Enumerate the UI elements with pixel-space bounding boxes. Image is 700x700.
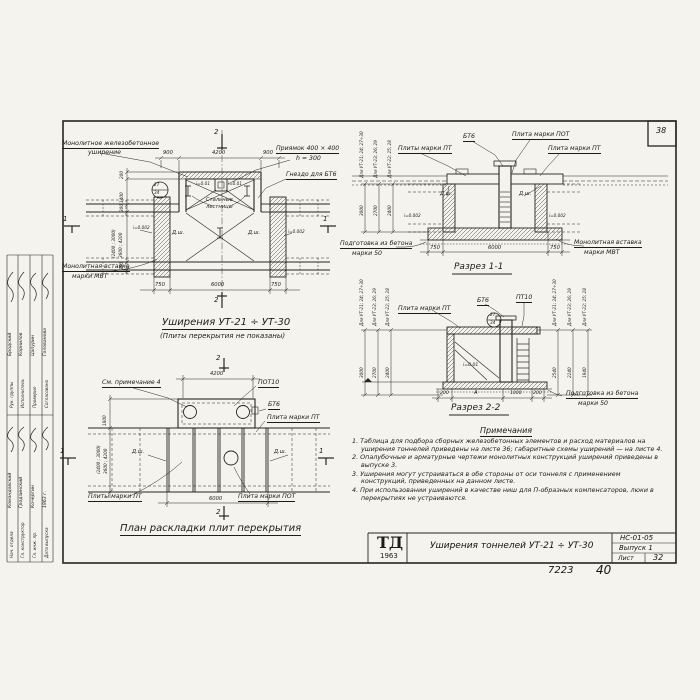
s2-slope: i=0.01 [463,364,478,369]
label-pit: Приямок 400 × 400 [276,146,339,154]
titleblock-sheet-number: 32 [653,554,663,562]
pb-dim-1800: 1800 [103,415,107,426]
stamp-role-5: Нач. отдела [10,531,14,558]
s1-dim-value-2: 2700 [374,205,378,216]
drawing-sheet: 38 Монолитное железобетонное уширение Пр… [0,0,700,700]
s2-dimr-value-2: 2240 [568,367,572,378]
slope-pit-left: i=0.01 [196,182,210,186]
titleblock-code: НС-01-05 [620,535,653,542]
detail-callout-num: 27 [154,183,159,187]
stamp-name-2: Корнилов [20,333,25,356]
s2-detail-sheet: 34 [490,321,495,325]
slope-left: i=0.002 [133,226,150,230]
notes-title: Примечания [480,427,532,437]
s2-dimr-label-1: Для УТ-21; 24; 27÷30 [553,279,557,326]
slope-right: i=0.002 [288,230,305,234]
stamp-role-6: Гл. конструктор [21,522,25,558]
joint-dsh-right: Д.ш. [248,231,260,236]
dim-750-left: 750 [155,283,165,288]
detail-callout-sheet: 34 [154,191,159,195]
s1-label-prep-2: марки 50 [352,251,382,257]
s2-dimr-value-1: 2540 [553,367,557,378]
label-socket-bt6: Гнездо для БТ6 [286,172,337,180]
s2-diml-value-2: 2700 [373,367,377,378]
stamp-role-7: Гл. инж. пр. [33,532,37,558]
section-mark-2-top: 2 [214,129,218,136]
s2-label-bt6: БТ6 [477,298,489,306]
s1-label-insert-2: марки МВТ [584,250,619,256]
s2-label-prep: Подготовка из бетона [566,391,638,399]
s2-diml-label-3: Для УТ-22; 25; 28 [386,288,390,326]
pb-label-pts: Плиты марки ПТ [88,494,142,502]
s1-label-prep: Подготовка из бетона [340,241,412,249]
s1-label-pt-right: Плита марки ПТ [548,146,601,154]
label-steel-ladders: Стальные [206,198,233,203]
pb-label-pt: Плита марки ПТ [267,415,320,423]
dim-300-top: 300 [120,204,124,212]
titleblock-issue: Выпуск 1 [619,545,653,552]
dim-4200: 4200 [212,151,225,156]
logo-year: 1963 [380,553,398,560]
s1-label-bt6: БТ6 [463,134,475,142]
pb-label-note: См. примечание 4 [102,380,161,388]
s1-dim-value-1: 3000 [360,205,364,216]
s1-label-insert: Монолитная вставка [574,240,642,248]
dim-900-right: 900 [263,151,273,156]
s2-diml-label-1: Для УТ-21; 24; 27÷30 [360,279,364,326]
s1-slope-left: i=0.002 [404,214,421,218]
pb-dsh-left: Д.ш. [132,450,144,455]
dim-750-right: 750 [271,283,281,288]
stamp-name-6: Гродзинский [20,477,25,508]
s2-dimr-value-3: 1940 [583,367,587,378]
s2-diml-value-1: 3000 [360,367,364,378]
s2-label-pt10: ПТ10 [516,295,532,303]
pb-dim-width-a: (2400 ; 3000) [97,445,101,474]
s1-dim-750-left: 750 [430,246,440,251]
stamp-name-1: Бродский [9,333,14,356]
stamp-role-8: Дата выпуска [45,527,49,558]
pb-dim-6000: 6000 [209,497,222,502]
pb-mark-1-right: 1 [319,448,323,455]
s2-dim-a: А [474,391,478,396]
label-monolithic-insert-2: марки МВТ [72,274,107,280]
dim-width-a: (2400 ; 3000) [112,229,116,258]
s2-dimr-label-2: Для УТ-23; 26; 29 [568,288,572,326]
slope-pit-right: i=0.01 [228,182,242,186]
pb-mark-2-bottom: 2 [216,509,220,516]
dim-300-bottom: 300 [120,262,124,270]
s2-dim-200-right: 200 [533,392,542,397]
s2-label-pt: Плита марки ПТ [398,306,451,314]
titleblock-title: Уширения тоннелей УТ-21 ÷ УТ-30 [430,542,594,551]
pb-dsh-right: Д.ш. [274,450,286,455]
s2-label-prep-2: марки 50 [578,401,608,407]
stamp-role-4: Согласовано [45,380,49,408]
section-mark-2-bottom: 2 [214,297,218,304]
pb-mark-1-left: 1 [60,448,64,455]
stamp-name-8: 1963 г. [44,491,49,508]
stamp-name-7: Кочергин [32,485,37,508]
s1-slope-right: i=0.002 [549,214,566,218]
s2-detail-num: 27 [490,313,495,317]
s1-dsh-right: Д.ш. [519,192,531,197]
s1-dsh-left: Д.ш. [440,192,452,197]
note-item-4: 4. При использовании уширений в качестве… [352,487,668,502]
pb-label-pot10: ПОТ10 [258,380,279,388]
dim-200: 200 [120,171,124,179]
dim-900-left: 900 [163,151,173,156]
joint-dsh-left: Д.ш. [172,231,184,236]
stamp-name-3: Цапурин [32,335,37,356]
s1-dim-value-3: 2400 [388,205,392,216]
stamp-role-1: Рук. группы [10,382,14,408]
note-item-1: 1. Таблица для подбора сборных железобет… [352,438,668,453]
logo-td: ТД [377,535,403,551]
pb-dim-width-b: 3600 ; 4200 [104,449,108,474]
s1-dim-6000: 6000 [488,246,501,251]
section-1-title: Разрез 1-1 [454,263,503,272]
titleblock-sheet-label: Лист [618,556,634,562]
s1-label-pot: Плита марки ПОТ [512,132,569,140]
s2-diml-label-2: Для УТ-23; 26; 29 [373,288,377,326]
stamp-role-3: Проверил [33,387,37,408]
stamp-role-2: Исполнитель [21,379,25,408]
pb-label-pot: Плита марки ПОТ [238,494,295,502]
label-steel-ladders-2: лестницы [206,205,233,210]
note-item-2: 2. Опалубочные и арматурные чертежи моно… [352,454,668,469]
s1-dim-label-3: Для УТ-22; 25; 28 [388,140,392,178]
label-pit-height: h = 300 [296,156,321,162]
dim-1400: 1400 [120,192,124,203]
stamp-name-5: Командовский [9,473,14,508]
s2-dim-1000: 1000 [510,392,522,397]
pb-mark-2-top: 2 [216,355,220,362]
drawing-linework [0,0,700,700]
notes-list: 1. Таблица для подбора сборных железобет… [352,438,668,504]
section-2-title: Разрез 2-2 [451,404,500,413]
doc-number: 7223 [548,566,573,576]
section-mark-1-right: 1 [323,216,327,223]
note-item-3: 3. Уширения могут устраиваться в обе сто… [352,471,668,486]
plan-top-subtitle: (Плиты перекрытия не показаны) [160,333,285,340]
pb-label-bt6: БТ6 [268,402,280,410]
s1-label-pt-left: Плиты марки ПТ [398,146,452,154]
s1-dim-label-1: Для УТ-21; 24; 27÷30 [360,131,364,178]
s2-dim-200-left: 200 [440,392,449,397]
corner-sheet-number: 38 [656,127,666,135]
dim-width-b: 3600 ; 4200 [119,233,123,258]
section-mark-1-left: 1 [63,216,67,223]
s1-dim-750-right: 750 [550,246,560,251]
label-monolithic-widening: Монолитное железобетонное [62,141,159,149]
plan-top-title: Уширения УТ-21 ÷ УТ-30 [162,318,290,330]
s2-diml-value-3: 2400 [386,367,390,378]
page-number: 40 [596,564,611,576]
dim-6000: 6000 [211,283,224,288]
label-monolithic-widening-2: уширение [88,150,121,156]
pb-dim-4200: 4200 [210,372,223,377]
stamp-name-4: Голованова [44,328,49,356]
s2-dimr-label-3: Для УТ-22; 25; 28 [583,288,587,326]
plan-bottom-title: План раскладки плит перекрытия [120,524,301,536]
s1-dim-label-2: Для УТ-23; 26; 29 [374,140,378,178]
